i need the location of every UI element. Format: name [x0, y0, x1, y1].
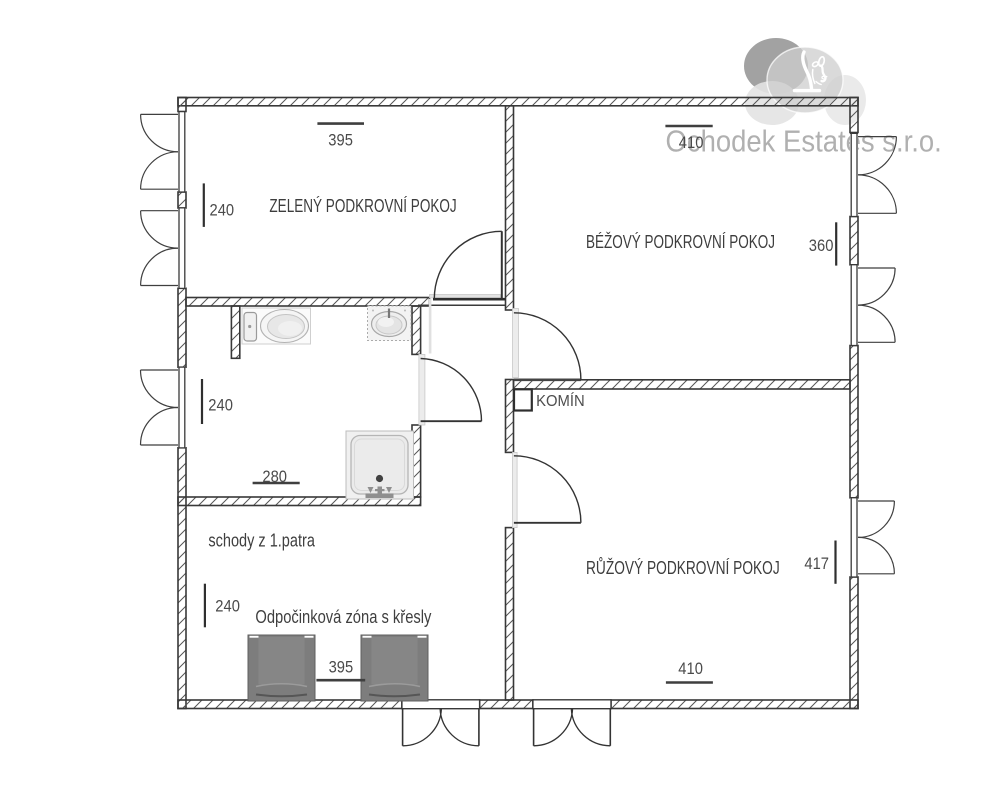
svg-text:395: 395: [328, 130, 353, 149]
svg-text:360: 360: [809, 236, 834, 255]
svg-text:Ochodek Estates s.r.o.: Ochodek Estates s.r.o.: [666, 125, 942, 159]
svg-text:395: 395: [329, 658, 354, 677]
svg-text:240: 240: [210, 201, 235, 220]
svg-text:Odpočinková zóna s křesly: Odpočinková zóna s křesly: [255, 607, 431, 627]
svg-text:280: 280: [262, 467, 287, 486]
svg-text:ZELENÝ PODKROVNÍ POKOJ: ZELENÝ PODKROVNÍ POKOJ: [269, 195, 456, 216]
svg-text:410: 410: [678, 659, 703, 678]
svg-text:410: 410: [679, 133, 704, 152]
svg-text:RŮŽOVÝ PODKROVNÍ POKOJ: RŮŽOVÝ PODKROVNÍ POKOJ: [586, 557, 780, 578]
svg-text:BÉŽOVÝ PODKROVNÍ POKOJ: BÉŽOVÝ PODKROVNÍ POKOJ: [586, 232, 775, 252]
svg-text:240: 240: [215, 597, 240, 616]
svg-text:schody z 1.patra: schody z 1.patra: [208, 531, 315, 551]
svg-text:240: 240: [208, 395, 233, 414]
svg-text:417: 417: [804, 554, 829, 573]
svg-text:KOMÍN: KOMÍN: [536, 393, 585, 410]
